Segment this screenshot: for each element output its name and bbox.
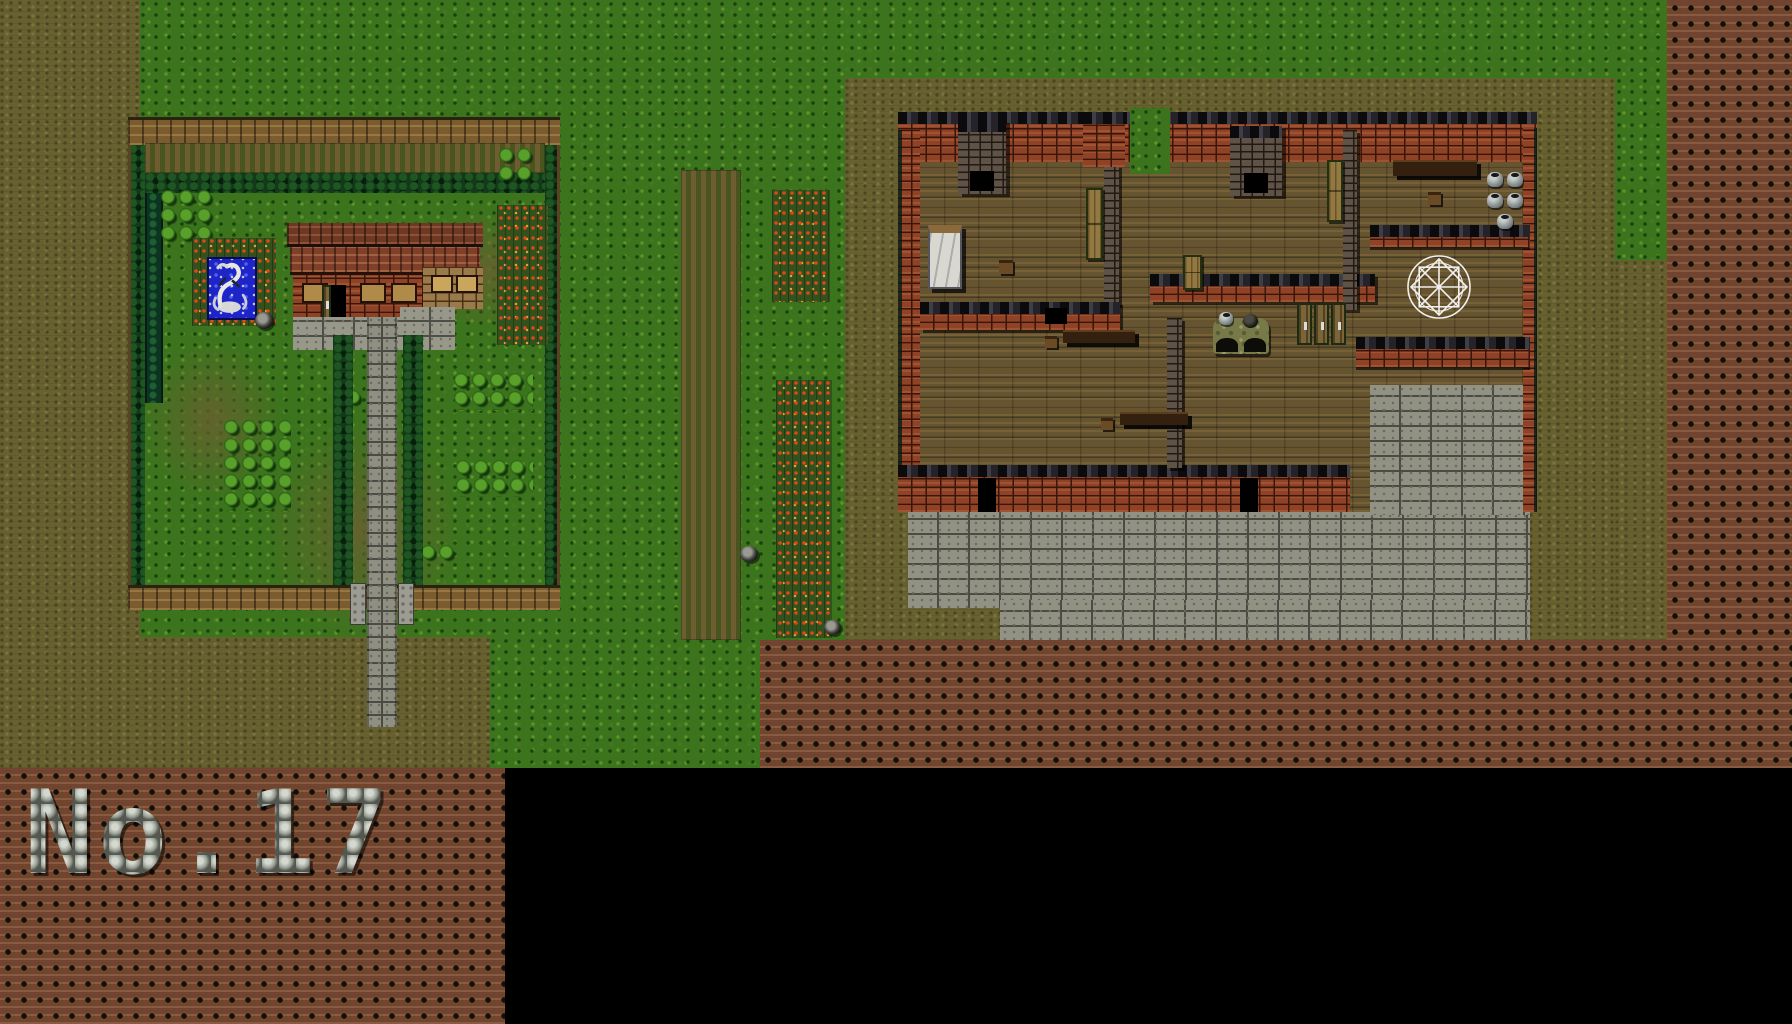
interior-floorplan-map: [745, 78, 1660, 640]
bush-cluster: [455, 460, 533, 497]
table-right: [1393, 160, 1477, 176]
wall-block-mid: [1083, 112, 1125, 167]
outer-wall-west: [898, 130, 920, 512]
entrance-pad: [293, 317, 417, 350]
furrow-strip: [681, 170, 741, 640]
storage-jar: [1487, 193, 1503, 208]
cupboard-1: [1086, 188, 1103, 260]
outer-wall-east: [1523, 128, 1537, 512]
chimney-east: [1230, 126, 1282, 196]
fountain-pond: [207, 257, 257, 320]
storage-jar: [1507, 193, 1523, 208]
farmhouse-roof-upper: [287, 223, 483, 247]
bush-cluster: [420, 545, 456, 563]
bedroom-stool: [999, 260, 1013, 274]
window: [456, 275, 478, 293]
path-hedge-east: [403, 335, 423, 585]
dirt-band-bottom-left: [0, 637, 490, 768]
table-south: [1120, 412, 1188, 425]
terrace-east: [1370, 385, 1530, 515]
storage-jar: [1497, 214, 1513, 229]
stool-mid: [1045, 336, 1057, 348]
window: [360, 283, 386, 303]
terrace-south: [908, 512, 1530, 608]
inner-wall-h4: [1356, 337, 1530, 367]
inner-wall-h1: [920, 302, 1120, 330]
bush-grid-c: [453, 373, 533, 411]
cupboard-2: [1327, 160, 1343, 222]
oven-mouth: [1244, 338, 1265, 352]
inner-wall-v3: [1343, 130, 1357, 310]
south-doorway-2: [1240, 478, 1258, 512]
bed: [928, 225, 962, 289]
dragon-statue-icon: [210, 260, 254, 316]
exterior-garden-map: [112, 90, 572, 637]
magic-circle-icon: [1404, 252, 1474, 322]
outer-wall-south: [898, 465, 1350, 512]
inner-doorway-1: [1045, 308, 1067, 324]
kitchen-door-1: [1297, 303, 1312, 345]
window: [431, 275, 453, 293]
oven-mouth: [1216, 338, 1237, 352]
map-sheet: No.17: [0, 0, 1792, 1024]
gate-pillar-east: [398, 583, 414, 625]
kitchen-door-3: [1331, 303, 1346, 345]
stone-walkway: [367, 317, 397, 727]
oven-pot: [1219, 312, 1233, 325]
table-mid: [1063, 330, 1135, 343]
wall-notch-grass: [1130, 108, 1170, 174]
south-doorway: [978, 478, 996, 512]
fence-top: [128, 117, 560, 145]
bush-grid-b: [223, 420, 291, 512]
oven-kettle: [1243, 314, 1258, 328]
stool-south: [1101, 418, 1113, 430]
cupboard-3: [1183, 255, 1202, 290]
bush-grid-a: [160, 190, 214, 244]
garden-well: [255, 312, 273, 329]
stool-right: [1428, 192, 1441, 205]
storage-jar: [1487, 172, 1503, 187]
wall-left: [128, 145, 145, 585]
flower-strip-east: [497, 205, 548, 345]
hearth-opening: [970, 171, 994, 191]
terrace-south-ext: [1000, 600, 1530, 640]
reddirt-band-south: [760, 640, 1792, 768]
inner-wall-v2: [1167, 318, 1182, 468]
gate-pillar-west: [350, 583, 366, 625]
window: [391, 283, 417, 303]
map-number-label: No.17: [24, 770, 444, 910]
field-band: [145, 143, 545, 173]
chimney-west: [958, 120, 1006, 194]
hearth-opening: [1244, 173, 1268, 193]
door-leaf: [322, 285, 331, 320]
fence-bottom: [128, 585, 560, 610]
path-hedge-west: [333, 335, 353, 585]
storage-jar: [1507, 172, 1523, 187]
grass-band-bottom-mid: [490, 637, 770, 768]
kitchen-door-2: [1314, 303, 1329, 345]
inner-wall-v1: [1104, 165, 1119, 305]
bush-cluster: [498, 148, 534, 184]
